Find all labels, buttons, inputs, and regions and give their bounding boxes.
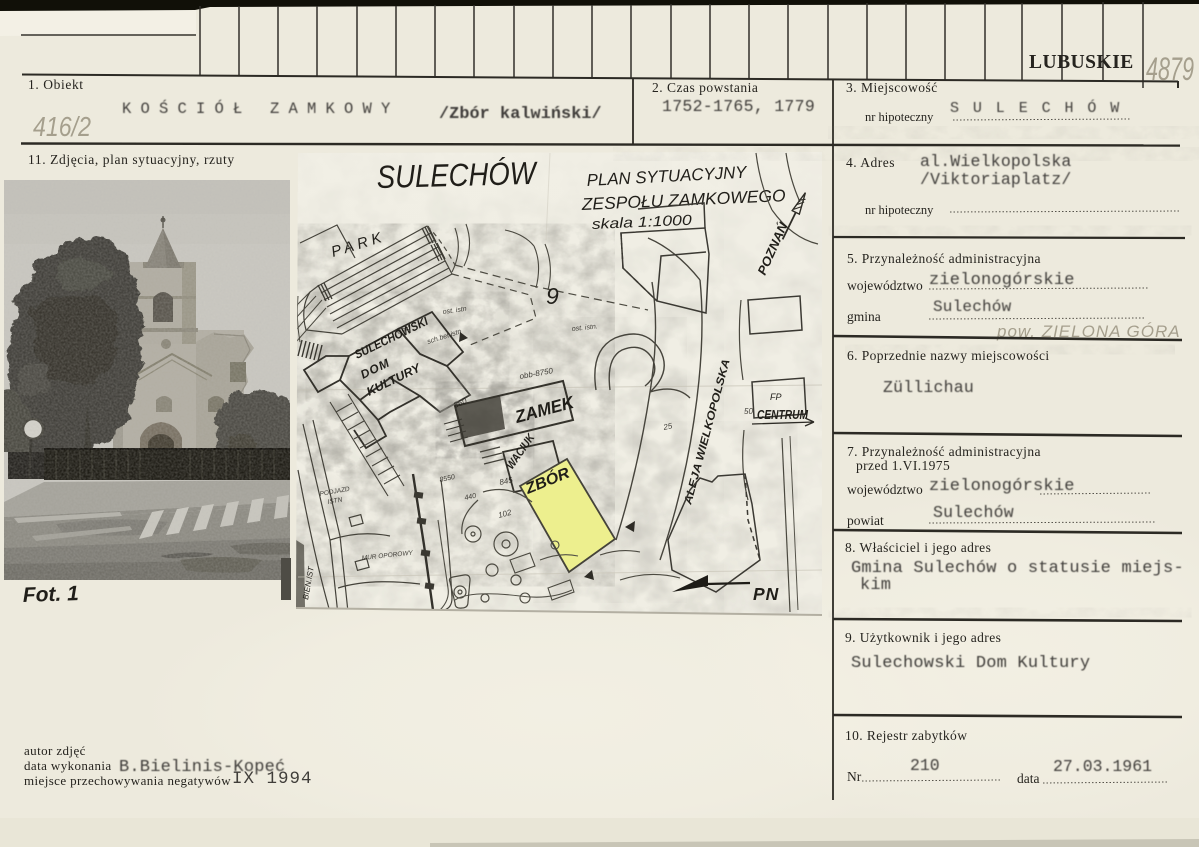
svg-text:9: 9	[546, 283, 559, 309]
svg-text:1752-1765, 1779: 1752-1765, 1779	[662, 97, 815, 116]
svg-text:PN: PN	[753, 584, 779, 604]
svg-text:FP: FP	[770, 392, 782, 402]
svg-text:50: 50	[744, 407, 753, 416]
svg-text:Nr: Nr	[847, 769, 862, 784]
svg-text:Sulechowski Dom Kultury: Sulechowski Dom Kultury	[851, 654, 1090, 673]
svg-text:data wykonania: data wykonania	[24, 758, 112, 773]
svg-text:210: 210	[910, 756, 940, 775]
svg-text:SULECHÓW: SULECHÓW	[950, 99, 1133, 117]
svg-text:województwo: województwo	[847, 278, 923, 293]
svg-text:nr hipoteczny: nr hipoteczny	[865, 203, 934, 217]
svg-text:województwo: województwo	[847, 482, 923, 497]
svg-text:przed 1.VI.1975: przed 1.VI.1975	[856, 458, 950, 473]
svg-text:5. Przynależność administracyj: 5. Przynależność administracyjna	[847, 251, 1041, 266]
svg-text:al.Wielkopolska: al.Wielkopolska	[920, 152, 1072, 171]
svg-text:nr hipoteczny: nr hipoteczny	[865, 110, 934, 124]
svg-text:27.03.1961: 27.03.1961	[1053, 757, 1152, 776]
svg-text:Sulechów: Sulechów	[933, 298, 1012, 316]
svg-text:6. Poprzednie nazwy miejscowoś: 6. Poprzednie nazwy miejscowości	[847, 348, 1050, 363]
svg-text:KOŚCIÓŁ ZAMKOWY: KOŚCIÓŁ ZAMKOWY	[122, 100, 400, 118]
svg-text:10. Rejestr zabytków: 10. Rejestr zabytków	[845, 728, 967, 743]
svg-text:gmina: gmina	[847, 309, 881, 324]
svg-text:autor zdjęć: autor zdjęć	[24, 743, 86, 758]
svg-text:Gmina Sulechów o statusie miej: Gmina Sulechów o statusie miejs-	[851, 559, 1184, 578]
svg-text:LUBUSKIE: LUBUSKIE	[1029, 52, 1134, 73]
svg-text:SULECHÓW: SULECHÓW	[376, 155, 538, 195]
svg-text:7. Przynależność administracyj: 7. Przynależność administracyjna	[847, 444, 1041, 459]
svg-text:kim: kim	[860, 576, 891, 595]
svg-text:4. Adres: 4. Adres	[846, 155, 895, 170]
svg-text:/Zbór kalwiński/: /Zbór kalwiński/	[439, 105, 602, 124]
svg-text:CENTRUM: CENTRUM	[757, 408, 808, 422]
svg-text:powiat: powiat	[847, 513, 884, 528]
svg-text:zielonogórskie: zielonogórskie	[929, 477, 1075, 496]
svg-text:2. Czas powstania: 2. Czas powstania	[652, 80, 758, 95]
svg-text:9. Użytkownik i jego adres: 9. Użytkownik i jego adres	[845, 630, 1001, 645]
svg-text:Sulechów: Sulechów	[933, 503, 1014, 522]
svg-text:zielonogórskie: zielonogórskie	[929, 271, 1075, 290]
svg-text:4879: 4879	[1146, 51, 1194, 87]
svg-text:Züllichau: Züllichau	[883, 378, 974, 397]
svg-text:data: data	[1017, 771, 1040, 786]
svg-text:3. Miejscowość: 3. Miejscowość	[846, 80, 938, 95]
svg-text:/Viktoriaplatz/: /Viktoriaplatz/	[920, 170, 1072, 189]
svg-text:Fot. 1: Fot. 1	[22, 582, 79, 607]
svg-text:IX 1994: IX 1994	[232, 769, 313, 789]
svg-text:11. Zdjęcia, plan sytuacyjny,: 11. Zdjęcia, plan sytuacyjny, rzuty	[28, 152, 235, 167]
svg-text:416/2: 416/2	[33, 111, 91, 142]
svg-text:miejsce przechowywania negatyw: miejsce przechowywania negatywów	[24, 773, 231, 788]
svg-text:1. Obiekt: 1. Obiekt	[28, 77, 84, 92]
svg-text:8. Właściciel i jego adres: 8. Właściciel i jego adres	[845, 540, 991, 555]
